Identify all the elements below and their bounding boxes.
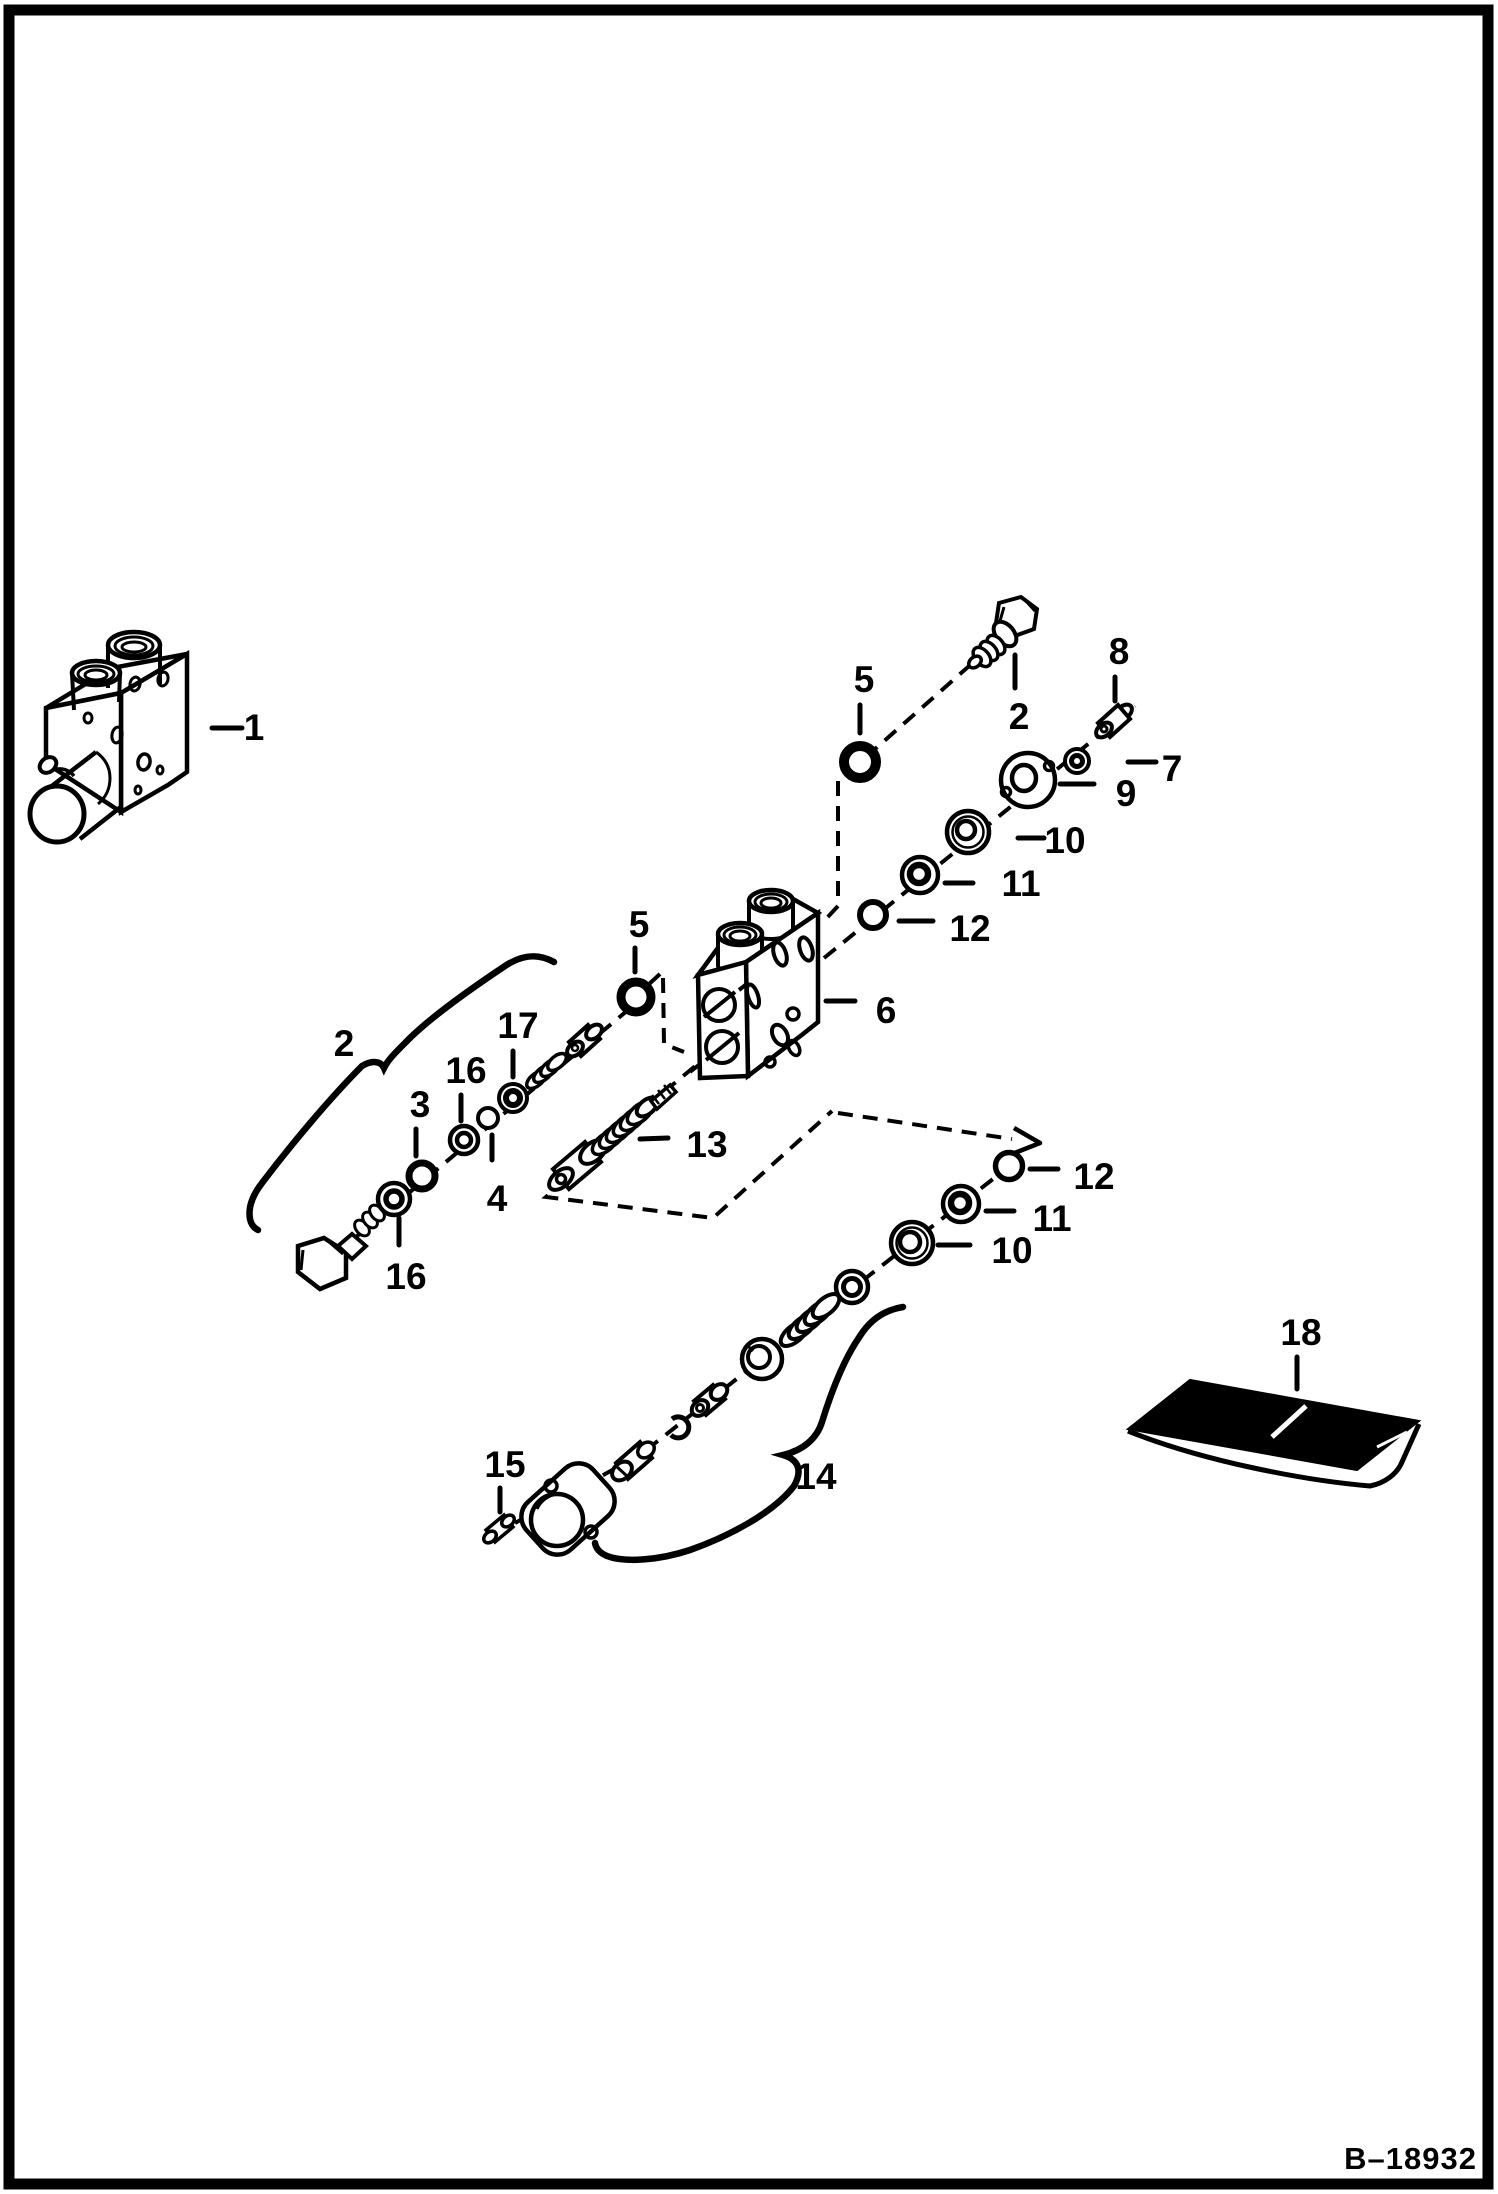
part-11-seal-upper [902,857,938,893]
callout-10-upper: 10 [1044,820,1085,861]
callout-16-lower: 16 [385,1256,426,1297]
callout-13: 13 [686,1124,727,1165]
callout-6: 6 [876,990,897,1031]
callout-5-left: 5 [629,904,650,945]
detent-spring [777,1290,844,1351]
part-11-seal-lower [943,1186,979,1222]
relief-poppet [564,1022,605,1060]
callout-10-lower: 10 [991,1230,1032,1271]
part-9-washer-plate [1001,753,1055,807]
callout-2-brace: 2 [334,1023,355,1064]
arrowhead-icon [1012,1128,1040,1154]
callout-5-upper: 5 [854,659,875,700]
callout-18: 18 [1280,1312,1321,1353]
callout-15: 15 [484,1444,525,1485]
callout-14: 14 [795,1456,837,1497]
callout-12-lower: 12 [1073,1156,1114,1197]
callout-8: 8 [1109,631,1130,672]
callout-11-lower: 11 [1032,1198,1071,1239]
callout-4: 4 [487,1178,508,1219]
detent-cup-ring [742,1339,782,1379]
parts-diagram-page: 1 2 5 8 7 9 10 11 12 6 2 5 17 16 3 4 16 … [0,0,1498,2194]
part-3-oring [409,1163,435,1189]
figure-code: B–18932 [1344,2141,1477,2176]
callout-1: 1 [244,707,265,748]
part-12-oring-upper [860,902,886,928]
part-1-valve-block [30,632,187,842]
part-16-hex-plug [298,1202,387,1289]
part-6-valve-body [690,890,818,1078]
part-12-oring-lower [996,1153,1023,1180]
part-15-screw [481,1513,516,1546]
part-16-ring-upper [450,1126,478,1154]
detent-bushing [689,1381,731,1419]
detent-end-ring [836,1271,868,1303]
detent-screw [608,1439,657,1484]
part-10-seal-ring-upper [947,811,989,853]
callout-16-upper: 16 [445,1050,486,1091]
page-border-frame [9,10,1488,2184]
exploded-parts-diagram: 1 2 5 8 7 9 10 11 12 6 2 5 17 16 3 4 16 … [0,0,1498,2194]
part-16-ring-lower [378,1183,410,1215]
callout-11-upper: 11 [1001,863,1040,904]
part-8-socket-plug [1093,702,1135,741]
callout-12-upper: 12 [949,908,990,949]
part-5-oring-upper [844,746,876,778]
part-18-seal-kit [1128,1380,1419,1486]
part-4-ball [478,1108,498,1128]
callout-9: 9 [1116,773,1137,814]
callout-17: 17 [497,1005,538,1046]
part-2-threaded-plug [966,597,1037,670]
part-7-ring [1065,749,1089,773]
callout-2-plug: 2 [1009,696,1030,737]
callout-7: 7 [1162,748,1183,789]
part-17-seat-ring [499,1084,527,1112]
callout-3: 3 [410,1084,431,1125]
relief-spring-small [524,1050,570,1091]
part-10-seal-ring-lower [891,1222,933,1264]
part-5-oring-left [621,982,651,1012]
